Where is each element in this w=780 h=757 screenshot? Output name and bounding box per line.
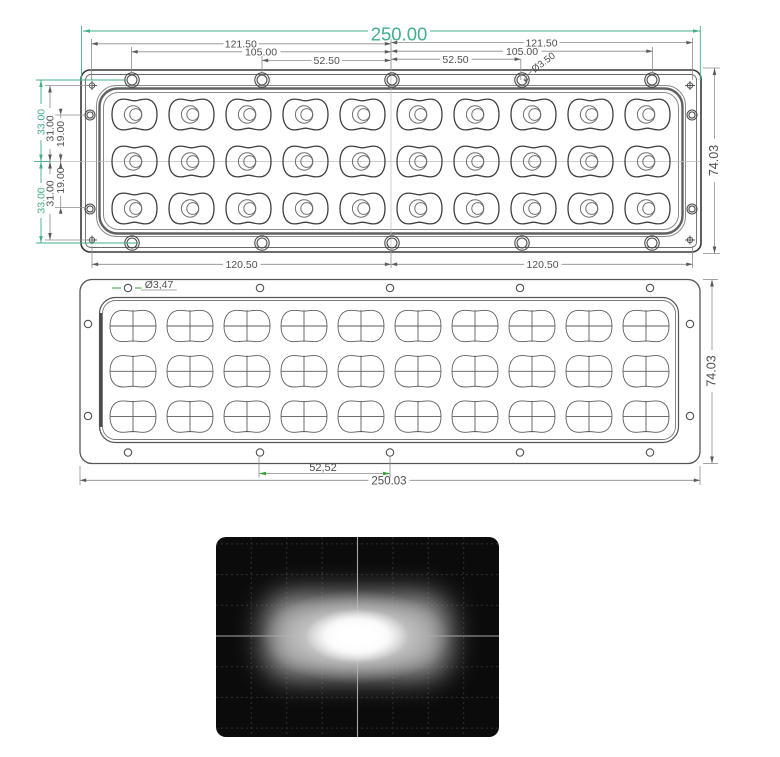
svg-text:74.03: 74.03 xyxy=(707,145,721,176)
svg-text:52.50: 52.50 xyxy=(442,54,468,66)
svg-text:120.50: 120.50 xyxy=(225,259,257,271)
svg-text:Ø3,47: Ø3,47 xyxy=(145,279,174,291)
svg-text:105.00: 105.00 xyxy=(506,46,538,58)
svg-text:52.50: 52.50 xyxy=(314,55,340,67)
svg-text:74.03: 74.03 xyxy=(705,355,719,386)
svg-text:105.00: 105.00 xyxy=(245,47,277,59)
svg-text:250.03: 250.03 xyxy=(371,475,406,487)
svg-text:19.00: 19.00 xyxy=(55,167,67,193)
svg-text:52,52: 52,52 xyxy=(309,462,337,474)
svg-text:120.50: 120.50 xyxy=(526,259,558,271)
svg-text:250.00: 250.00 xyxy=(371,24,428,45)
svg-text:19.00: 19.00 xyxy=(55,121,67,147)
